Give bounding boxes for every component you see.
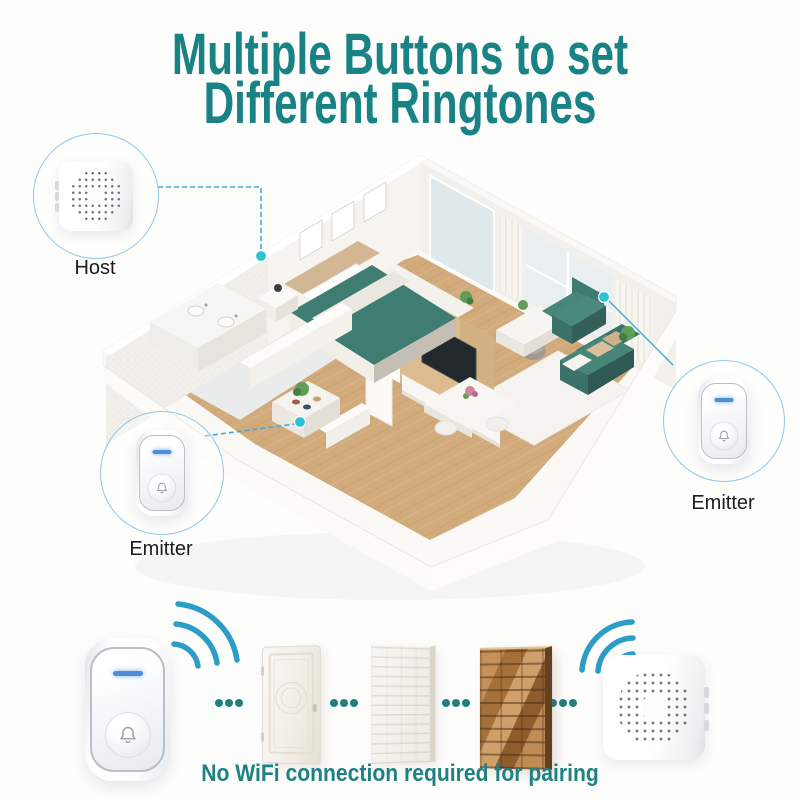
receiver-speaker bbox=[603, 655, 705, 760]
speaker-grill-icon bbox=[70, 170, 122, 222]
emitter-right-callout-circle bbox=[663, 360, 785, 482]
emitter-location-marker bbox=[599, 292, 610, 303]
door-illustration bbox=[262, 645, 321, 765]
emitter-right-label: Emitter bbox=[663, 492, 783, 515]
plaster-wall-illustration bbox=[371, 643, 435, 764]
shoe bbox=[292, 400, 300, 405]
curtain bbox=[500, 214, 522, 302]
emitter-left-callout-circle bbox=[100, 411, 224, 535]
emitter-right-device bbox=[698, 378, 750, 464]
side-button bbox=[704, 687, 709, 698]
door-hinge bbox=[261, 666, 264, 675]
side-button bbox=[55, 192, 59, 201]
host-callout-circle bbox=[33, 133, 159, 259]
shoe bbox=[303, 405, 311, 410]
faucet bbox=[205, 304, 208, 307]
led-indicator bbox=[715, 398, 734, 402]
doorbell-press-button bbox=[105, 712, 151, 758]
chair bbox=[486, 417, 508, 431]
door-knob bbox=[313, 704, 317, 712]
host-label: Host bbox=[33, 257, 157, 280]
host-connector-line bbox=[158, 187, 261, 250]
lamp bbox=[274, 284, 282, 292]
side-button bbox=[55, 181, 59, 190]
bell-icon bbox=[118, 725, 138, 745]
bottom-caption: No WiFi connection required for pairing bbox=[48, 760, 752, 788]
page-title: Multiple Buttons to set Different Ringto… bbox=[108, 30, 692, 128]
doorbell-press-button bbox=[710, 422, 739, 451]
speaker-grill-icon bbox=[617, 671, 691, 745]
flowers bbox=[472, 391, 478, 397]
led-indicator bbox=[113, 671, 143, 676]
bell-icon bbox=[718, 430, 731, 443]
door-circle-groove bbox=[281, 687, 302, 708]
faucet bbox=[235, 315, 238, 318]
wifi-waves-icon bbox=[174, 604, 237, 666]
bell-icon bbox=[156, 482, 169, 495]
side-button bbox=[704, 703, 709, 714]
shoe bbox=[313, 397, 321, 402]
led-indicator bbox=[153, 450, 172, 454]
emitter-left-device bbox=[136, 430, 188, 516]
emitter-location-marker bbox=[295, 417, 306, 428]
host-location-marker bbox=[256, 251, 267, 262]
brick-wall-illustration bbox=[480, 646, 552, 770]
side-button bbox=[704, 720, 709, 731]
door-hinge bbox=[261, 732, 264, 741]
promo-page: Multiple Buttons to set Different Ringto… bbox=[0, 0, 800, 800]
doorbell-press-button bbox=[148, 474, 177, 503]
host-device bbox=[59, 161, 133, 231]
sink bbox=[218, 317, 234, 327]
side-button bbox=[55, 203, 59, 212]
chair bbox=[435, 421, 457, 435]
sink bbox=[188, 306, 204, 316]
emitter-left-label: Emitter bbox=[100, 538, 222, 561]
